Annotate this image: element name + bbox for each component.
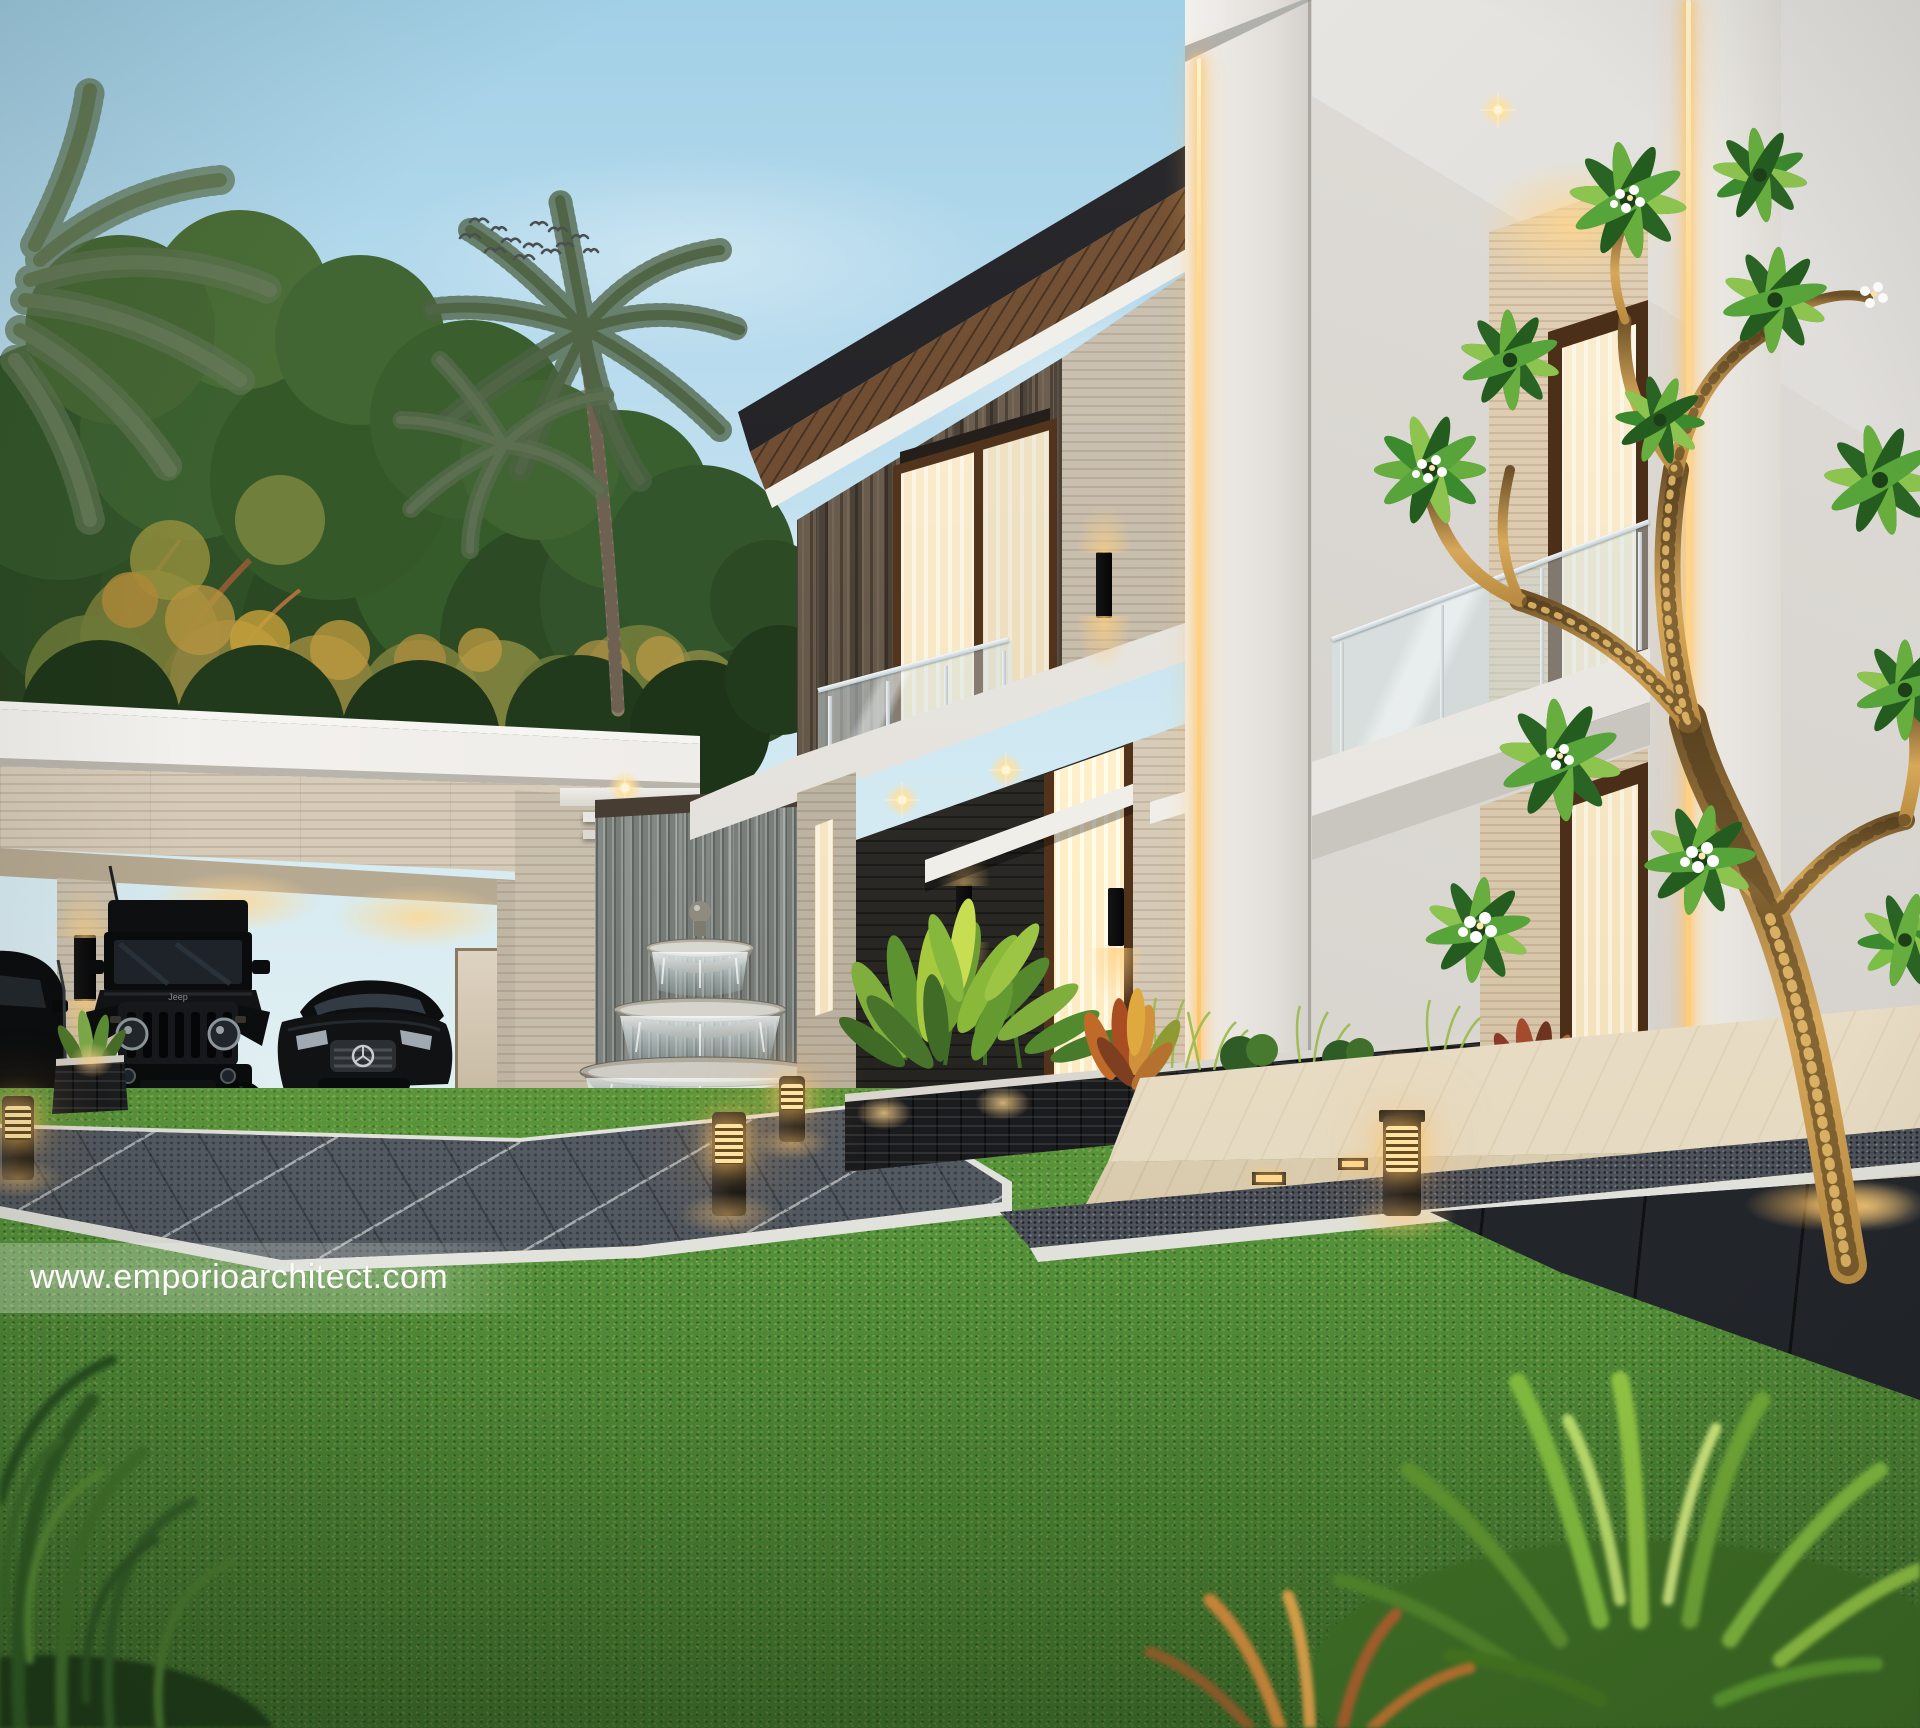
architectural-render: Jeep [0,0,1920,1728]
watermark: www.emporioarchitect.com [30,1258,448,1297]
vignette [0,0,1920,1728]
